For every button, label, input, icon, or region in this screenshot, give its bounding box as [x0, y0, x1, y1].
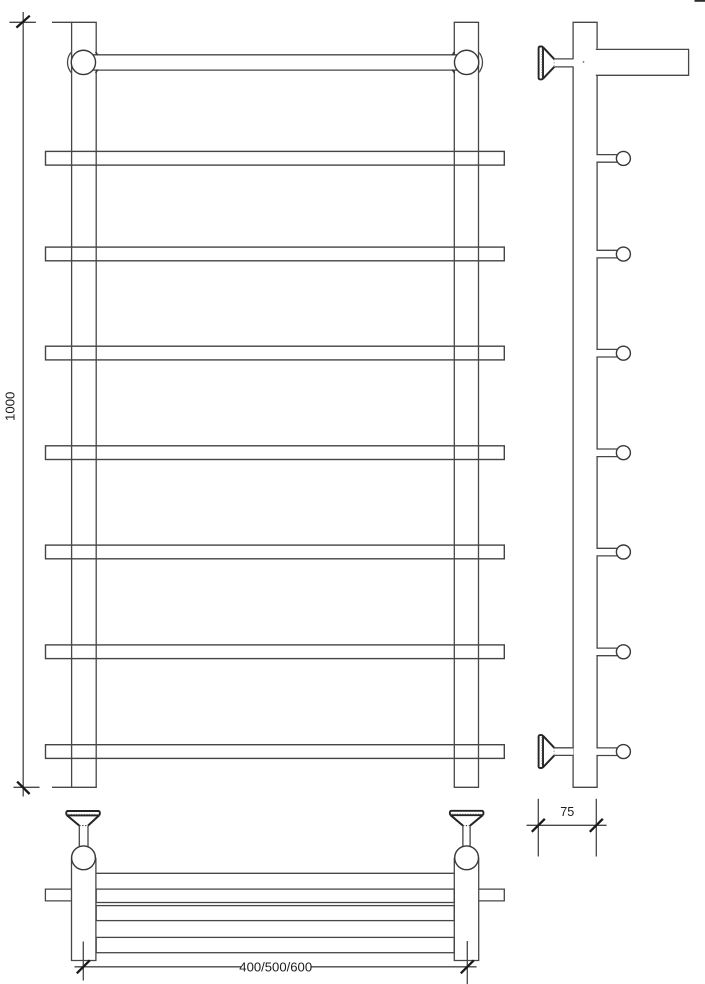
svg-text:75: 75: [560, 805, 574, 819]
svg-text:1000: 1000: [2, 392, 17, 421]
svg-text:400/500/600: 400/500/600: [239, 959, 312, 974]
